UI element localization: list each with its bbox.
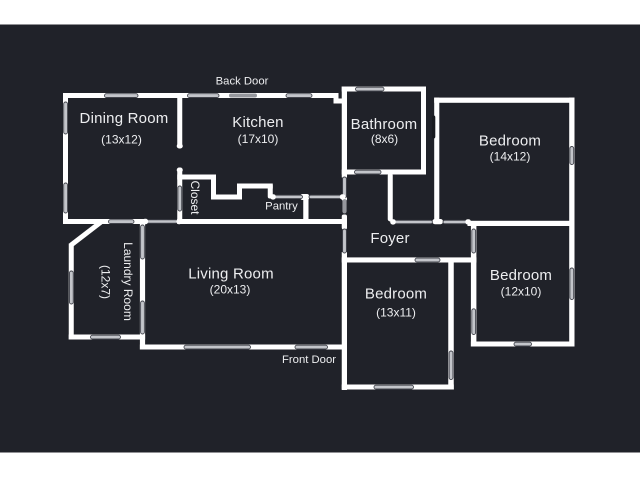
svg-text:(20x13): (20x13) — [210, 283, 251, 297]
svg-text:Closet: Closet — [188, 180, 202, 215]
svg-text:(13x11): (13x11) — [376, 306, 416, 320]
svg-text:Living Room: Living Room — [188, 266, 274, 283]
svg-text:Kitchen: Kitchen — [232, 114, 283, 131]
svg-text:(12x7): (12x7) — [99, 265, 113, 299]
svg-text:(12x10): (12x10) — [501, 284, 542, 298]
svg-text:Bedroom: Bedroom — [490, 267, 552, 284]
svg-text:(8x6): (8x6) — [371, 132, 398, 146]
svg-text:Bedroom: Bedroom — [365, 286, 427, 303]
svg-text:Bedroom: Bedroom — [479, 133, 541, 150]
svg-text:Dining Room: Dining Room — [80, 110, 169, 127]
svg-text:Foyer: Foyer — [370, 230, 409, 247]
svg-text:(14x12): (14x12) — [490, 150, 531, 164]
svg-text:(17x10): (17x10) — [238, 132, 279, 146]
svg-text:Laundry Room: Laundry Room — [121, 242, 135, 321]
svg-text:Back Door: Back Door — [216, 76, 269, 88]
svg-text:Pantry: Pantry — [265, 201, 298, 213]
svg-text:Bathroom: Bathroom — [351, 116, 418, 133]
svg-text:Front Door: Front Door — [282, 354, 336, 366]
svg-text:(13x12): (13x12) — [101, 133, 142, 147]
